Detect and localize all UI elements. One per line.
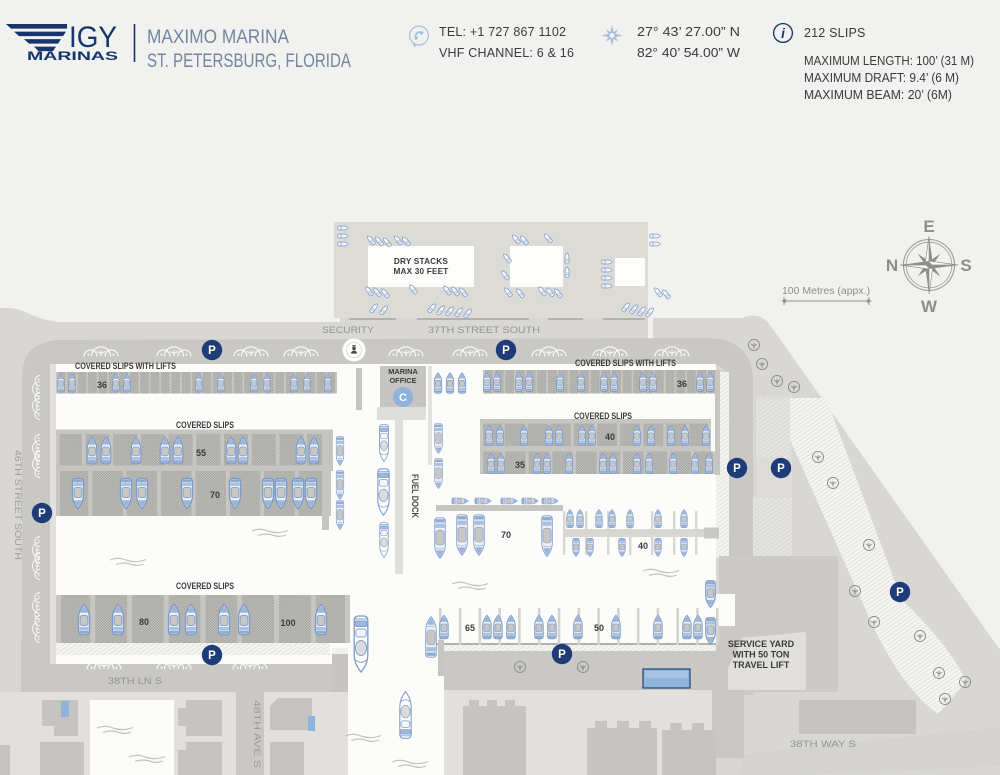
svg-text:MAXIMUM BEAM: 20’ (6M): MAXIMUM BEAM: 20’ (6M) [804,88,952,102]
svg-text:36: 36 [677,379,687,389]
svg-text:36: 36 [97,380,107,390]
svg-text:46TH STREET SOUTH: 46TH STREET SOUTH [12,450,23,560]
svg-text:W: W [921,297,938,316]
svg-text:FUEL DOCK: FUEL DOCK [410,474,420,518]
svg-text:MARINAS: MARINAS [27,51,119,63]
svg-text:C: C [399,392,407,404]
svg-text:35: 35 [515,460,525,470]
svg-text:100 Metres (appx.): 100 Metres (appx.) [782,285,870,297]
svg-text:40: 40 [605,432,615,442]
svg-text:37TH STREET SOUTH: 37TH STREET SOUTH [428,325,540,335]
svg-text:65: 65 [465,623,475,633]
svg-text:ST. PETERSBURG, FLORIDA: ST. PETERSBURG, FLORIDA [147,50,351,72]
svg-text:50: 50 [594,623,604,633]
svg-text:55: 55 [196,448,206,458]
svg-text:COVERED SLIPS: COVERED SLIPS [176,420,234,430]
svg-text:MAX 30 FEET: MAX 30 FEET [394,267,449,276]
svg-text:SECURITY: SECURITY [322,325,374,335]
svg-text:TEL: +1 727 867 1102: TEL: +1 727 867 1102 [439,25,566,39]
svg-text:COVERED SLIPS: COVERED SLIPS [574,411,632,421]
svg-text:DRY STACKS: DRY STACKS [394,257,449,266]
svg-text:E: E [923,217,934,236]
svg-text:WITH 50 TON: WITH 50 TON [733,650,790,660]
svg-text:i: i [781,26,785,41]
svg-text:MARINA: MARINA [388,367,418,376]
svg-text:70: 70 [210,490,220,500]
svg-text:MAXIMO MARINA: MAXIMO MARINA [147,26,289,48]
svg-text:40: 40 [638,541,648,551]
svg-text:SERVICE YARD: SERVICE YARD [728,639,795,649]
svg-text:82° 40’ 54.00” W: 82° 40’ 54.00” W [637,46,740,60]
svg-text:80: 80 [139,617,149,627]
svg-text:70: 70 [501,530,511,540]
svg-text:VHF CHANNEL: 6 & 16: VHF CHANNEL: 6 & 16 [439,46,574,60]
svg-text:212 SLIPS: 212 SLIPS [804,26,866,40]
svg-text:100: 100 [280,618,295,628]
svg-text:OFFICE: OFFICE [389,376,416,385]
svg-text:MAXIMUM LENGTH: 100’ (31 M): MAXIMUM LENGTH: 100’ (31 M) [804,54,974,68]
svg-text:38TH WAY S: 38TH WAY S [790,739,856,750]
svg-text:N: N [886,256,898,275]
svg-text:48TH AVE S: 48TH AVE S [251,700,262,768]
svg-text:IGY: IGY [69,21,117,54]
svg-text:MAXIMUM DRAFT: 9.4’ (6 M): MAXIMUM DRAFT: 9.4’ (6 M) [804,71,959,85]
svg-text:COVERED SLIPS WITH LIFTS: COVERED SLIPS WITH LIFTS [75,361,176,371]
svg-text:TRAVEL LIFT: TRAVEL LIFT [733,660,790,670]
svg-text:COVERED SLIPS: COVERED SLIPS [176,581,234,591]
svg-text:38TH LN S: 38TH LN S [108,676,162,687]
svg-text:S: S [960,256,971,275]
svg-text:27° 43’ 27.00” N: 27° 43’ 27.00” N [637,25,740,39]
svg-text:COVERED SLIPS WITH LIFTS: COVERED SLIPS WITH LIFTS [575,358,676,368]
